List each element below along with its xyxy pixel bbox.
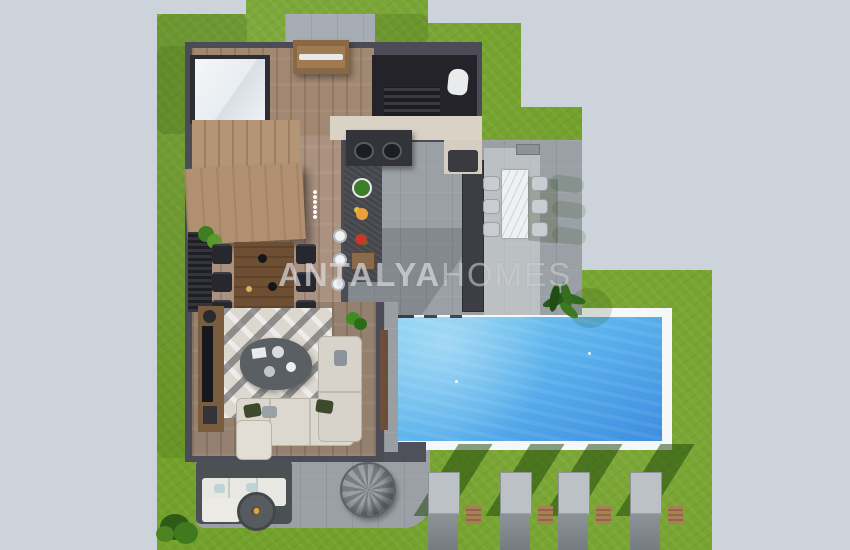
terrace-chair	[483, 222, 500, 237]
terrace-chair	[531, 176, 548, 191]
burner	[354, 142, 374, 160]
terrace-chair	[531, 222, 548, 237]
window-frame	[380, 330, 388, 430]
pendant-lights	[312, 190, 318, 220]
pool-water	[398, 317, 662, 441]
terrace-chair	[483, 199, 500, 214]
ac-unit	[516, 144, 540, 155]
terrace-chair	[483, 176, 500, 191]
indoor-plant	[346, 310, 368, 332]
skylight-glass	[195, 59, 265, 120]
lounger-side-table	[596, 506, 611, 524]
tv-unit	[198, 306, 224, 432]
sofa-chaise	[236, 420, 272, 460]
watermark-brand-light: HOMES	[441, 256, 572, 293]
outdoor-pillow	[246, 483, 257, 492]
pool-sparkle	[588, 352, 591, 355]
dining-chair	[212, 244, 232, 264]
garden-bush	[156, 508, 202, 550]
tv-screen	[202, 326, 213, 402]
pillow	[334, 350, 347, 366]
herb-bowl	[354, 180, 370, 196]
speaker	[203, 310, 216, 323]
hanging-egg-chair	[340, 462, 396, 518]
bowl	[264, 366, 275, 377]
kitchen-appliance	[448, 150, 478, 172]
peppers	[355, 234, 367, 245]
pillow	[315, 399, 334, 414]
entrance-pergola	[293, 40, 349, 74]
plate	[272, 346, 284, 358]
book	[251, 347, 266, 359]
fruit-bowl	[356, 208, 368, 220]
lounger-side-table	[538, 506, 553, 524]
table-decor	[246, 286, 252, 292]
watermark: ANTALYAHOMES	[278, 256, 572, 294]
pool-sparkle	[455, 380, 458, 383]
pillow	[262, 406, 277, 418]
table-lamp	[268, 282, 277, 291]
lounger-side-table	[668, 506, 683, 524]
coffee-table	[240, 338, 312, 390]
lounger-side-table	[466, 506, 481, 524]
table-lamp	[258, 254, 267, 263]
marble-dining-table	[502, 170, 528, 238]
outdoor-pillow	[214, 484, 225, 493]
dining-chair	[212, 272, 232, 292]
bar-stool	[333, 229, 347, 243]
plate	[286, 362, 296, 372]
flame	[254, 508, 259, 514]
terrace-chair	[531, 199, 548, 214]
entrance-bench	[299, 54, 343, 60]
burner	[382, 142, 402, 160]
floor-plan-render: ANTALYAHOMES	[0, 0, 850, 550]
watermark-brand-bold: ANTALYA	[278, 256, 441, 293]
bbq-grill	[346, 130, 412, 166]
skylight-frame	[190, 55, 270, 124]
outdoor-sofa-chaise	[202, 498, 240, 522]
toilet	[447, 68, 470, 96]
fire-pit	[237, 492, 276, 531]
media-cabinet	[203, 406, 217, 424]
